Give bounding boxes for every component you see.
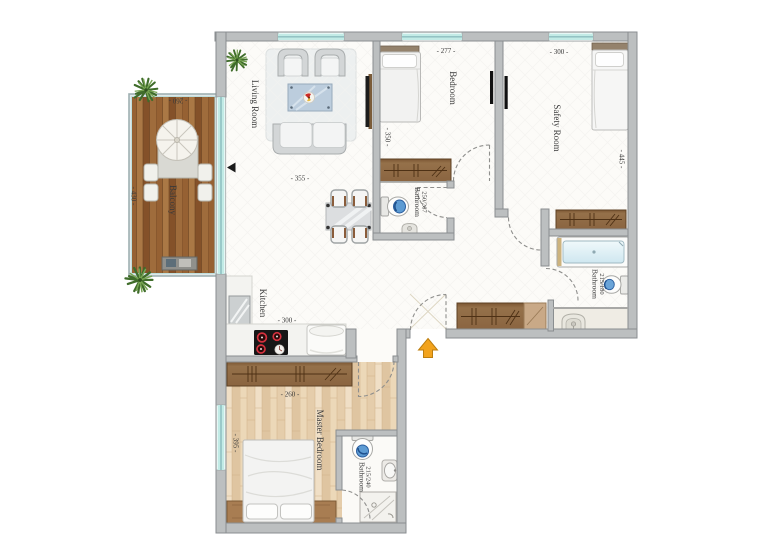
svg-text:215/240: 215/240: [365, 466, 372, 487]
svg-text:- 260 -: - 260 -: [281, 391, 300, 399]
svg-text:Living Room: Living Room: [250, 80, 260, 128]
svg-text:- 350 -: - 350 -: [384, 128, 392, 147]
svg-text:215/180: 215/180: [598, 273, 605, 294]
svg-text:- 445 -: - 445 -: [618, 150, 626, 169]
svg-text:- 300 -: - 300 -: [550, 48, 569, 56]
svg-text:Safety Room: Safety Room: [552, 104, 562, 151]
svg-text:- 277 -: - 277 -: [437, 47, 456, 55]
svg-text:Bedroom: Bedroom: [448, 71, 458, 105]
svg-text:- 430 -: - 430 -: [130, 187, 138, 206]
svg-text:Kitchen: Kitchen: [258, 289, 268, 318]
svg-text:- 395 -: - 395 -: [232, 434, 240, 453]
svg-text:- 260 -: - 260 -: [168, 97, 187, 105]
svg-text:- 355 -: - 355 -: [291, 175, 310, 183]
svg-text:Master Bedroom: Master Bedroom: [315, 410, 325, 471]
svg-text:250/267: 250/267: [421, 191, 428, 213]
svg-text:- 300 -: - 300 -: [278, 317, 297, 325]
svg-text:Balcony: Balcony: [168, 185, 178, 215]
